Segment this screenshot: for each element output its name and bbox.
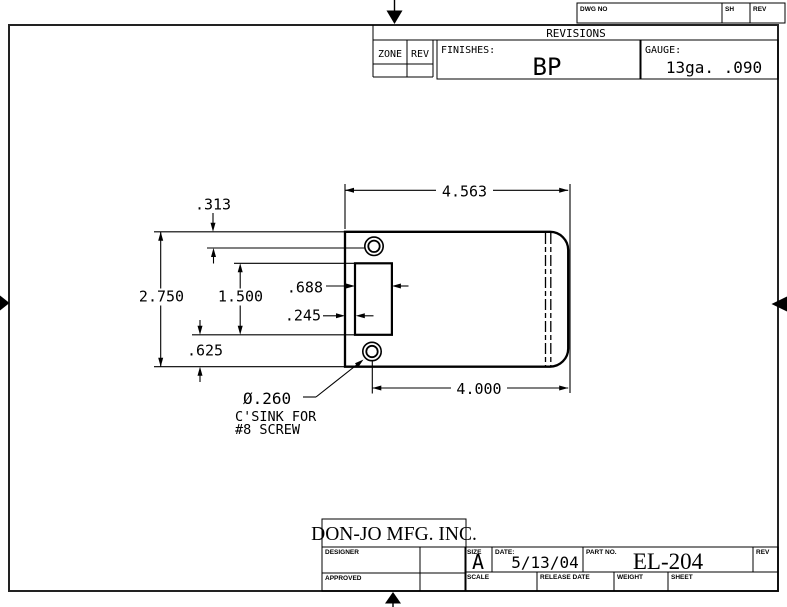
dimension-lines	[154, 184, 570, 397]
arrow-688-right	[392, 284, 401, 289]
arrow-4000-left	[372, 386, 381, 391]
zone-label: ZONE	[378, 49, 402, 60]
dim-cutout-width: .688	[287, 279, 323, 297]
arrow-4563-left	[345, 188, 354, 193]
drawing-sheet: DWG NO SH REV REVISIONS ZONE REV FINISHE…	[0, 0, 787, 607]
page-border	[9, 25, 778, 591]
dim-bottom-inset: .625	[187, 342, 223, 360]
arrow-2750-top	[158, 232, 163, 241]
top-center-arrow-icon	[387, 11, 403, 25]
bottom-hole	[366, 346, 377, 357]
gauge-value: 13ga. .090	[666, 58, 762, 77]
arrow-245-right	[356, 313, 365, 318]
scale-label: SCALE	[467, 574, 490, 581]
arrow-625-top	[198, 326, 203, 335]
dim-overall-height: 2.750	[139, 288, 184, 306]
drawing-canvas: DWG NO SH REV REVISIONS ZONE REV FINISHE…	[0, 0, 787, 607]
dim-cutout-height: 1.500	[218, 288, 263, 306]
sheet-label: SHEET	[671, 574, 693, 581]
size-value: A	[472, 550, 484, 574]
dwg-no-label: DWG NO	[580, 6, 607, 13]
note-diameter: Ø.260	[243, 389, 291, 408]
revisions-title: REVISIONS	[546, 27, 606, 40]
note-line3: #8 SCREW	[235, 422, 301, 438]
designer-label: DESIGNER	[325, 549, 359, 556]
plate-outline	[345, 232, 568, 367]
dim-overall-width: 4.563	[442, 183, 487, 201]
finishes-value: BP	[533, 53, 562, 81]
arrow-313-down	[211, 223, 216, 232]
part-no-label: PART NO.	[586, 549, 617, 556]
arrow-245-left	[336, 313, 345, 318]
rev-label: REV	[411, 49, 429, 60]
weight-label: WEIGHT	[617, 574, 643, 581]
dim-top-hole-offset: .313	[195, 196, 231, 214]
approved-label: APPROVED	[325, 575, 362, 582]
rev-strip-label: REV	[753, 6, 767, 13]
arrow-2750-bottom	[158, 358, 163, 367]
sh-label: SH	[725, 6, 734, 13]
arrow-4000-right	[559, 386, 568, 391]
right-center-arrow-icon	[772, 297, 787, 312]
release-date-label: RELEASE DATE	[540, 574, 590, 581]
top-hole	[368, 241, 379, 252]
dimension-text: 4.563 4.000 2.750 .313 1.500 .688 .245 .…	[139, 183, 502, 439]
cutout-rect	[355, 263, 392, 335]
arrow-688-left	[346, 284, 355, 289]
arrow-1500-top	[238, 263, 243, 272]
arrow-313-up	[211, 248, 216, 257]
registration-marks	[0, 0, 787, 607]
dim-hole-span: 4.000	[456, 380, 501, 398]
part-no-value: EL-204	[633, 549, 704, 574]
finishes-label: FINISHES:	[441, 45, 495, 56]
dim-cutout-inset: .245	[285, 307, 321, 325]
arrow-4563-right	[559, 188, 568, 193]
arrow-625-bottom	[198, 367, 203, 376]
bottom-center-arrow-icon	[385, 592, 401, 604]
arrow-1500-bottom	[238, 326, 243, 335]
company-name: DON-JO MFG. INC.	[311, 524, 477, 545]
part-drawing	[345, 232, 568, 367]
date-value: 5/13/04	[511, 553, 578, 572]
gauge-label: GAUGE:	[645, 45, 681, 56]
rev-cell-label: REV	[756, 549, 770, 556]
note-leader	[316, 365, 357, 397]
